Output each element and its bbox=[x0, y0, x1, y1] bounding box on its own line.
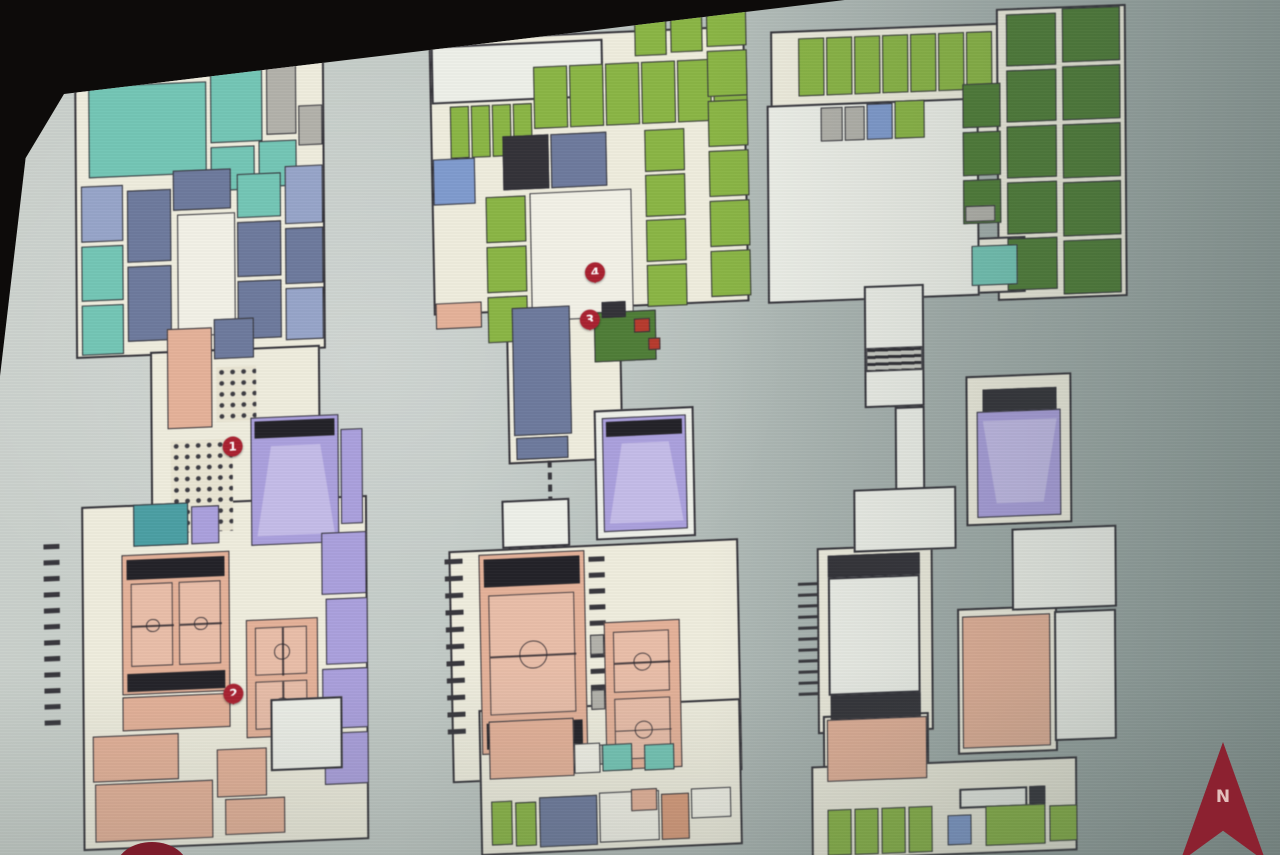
photo-backdrop: 1243 N bbox=[0, 0, 1280, 855]
north-label: N bbox=[1216, 787, 1230, 807]
screen-scanlines bbox=[0, 0, 1280, 855]
projection-screen: 1243 N bbox=[0, 0, 1280, 855]
